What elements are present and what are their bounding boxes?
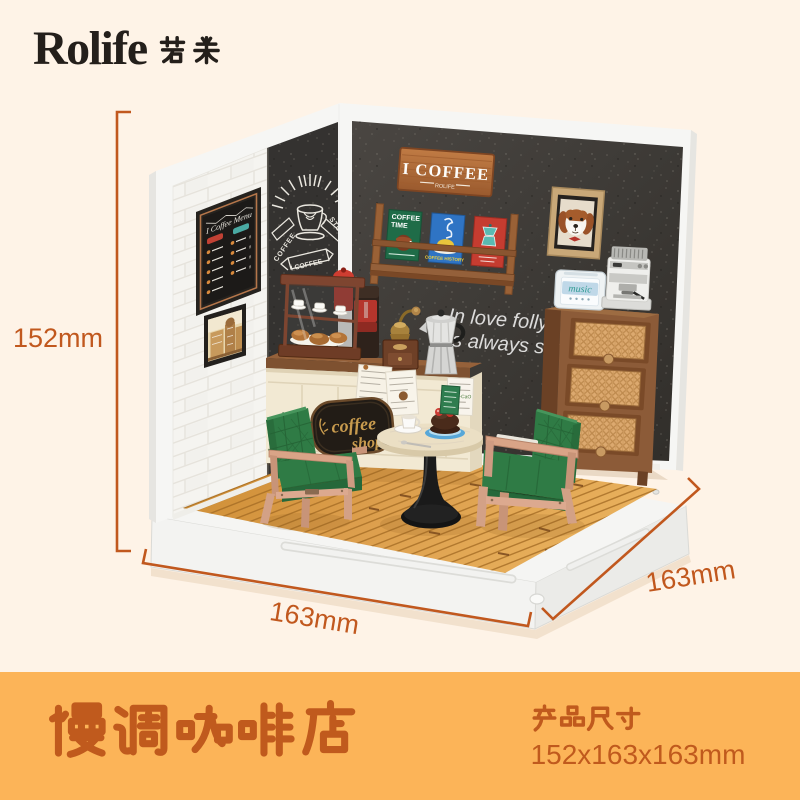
svg-text:coffee: coffee — [331, 413, 377, 437]
svg-text:TIME: TIME — [391, 222, 409, 230]
svg-text:music: music — [568, 283, 592, 295]
svg-text:152x163x163mm: 152x163x163mm — [531, 739, 746, 770]
svg-text:Rolife: Rolife — [33, 22, 148, 75]
svg-text:152mm: 152mm — [13, 323, 103, 353]
